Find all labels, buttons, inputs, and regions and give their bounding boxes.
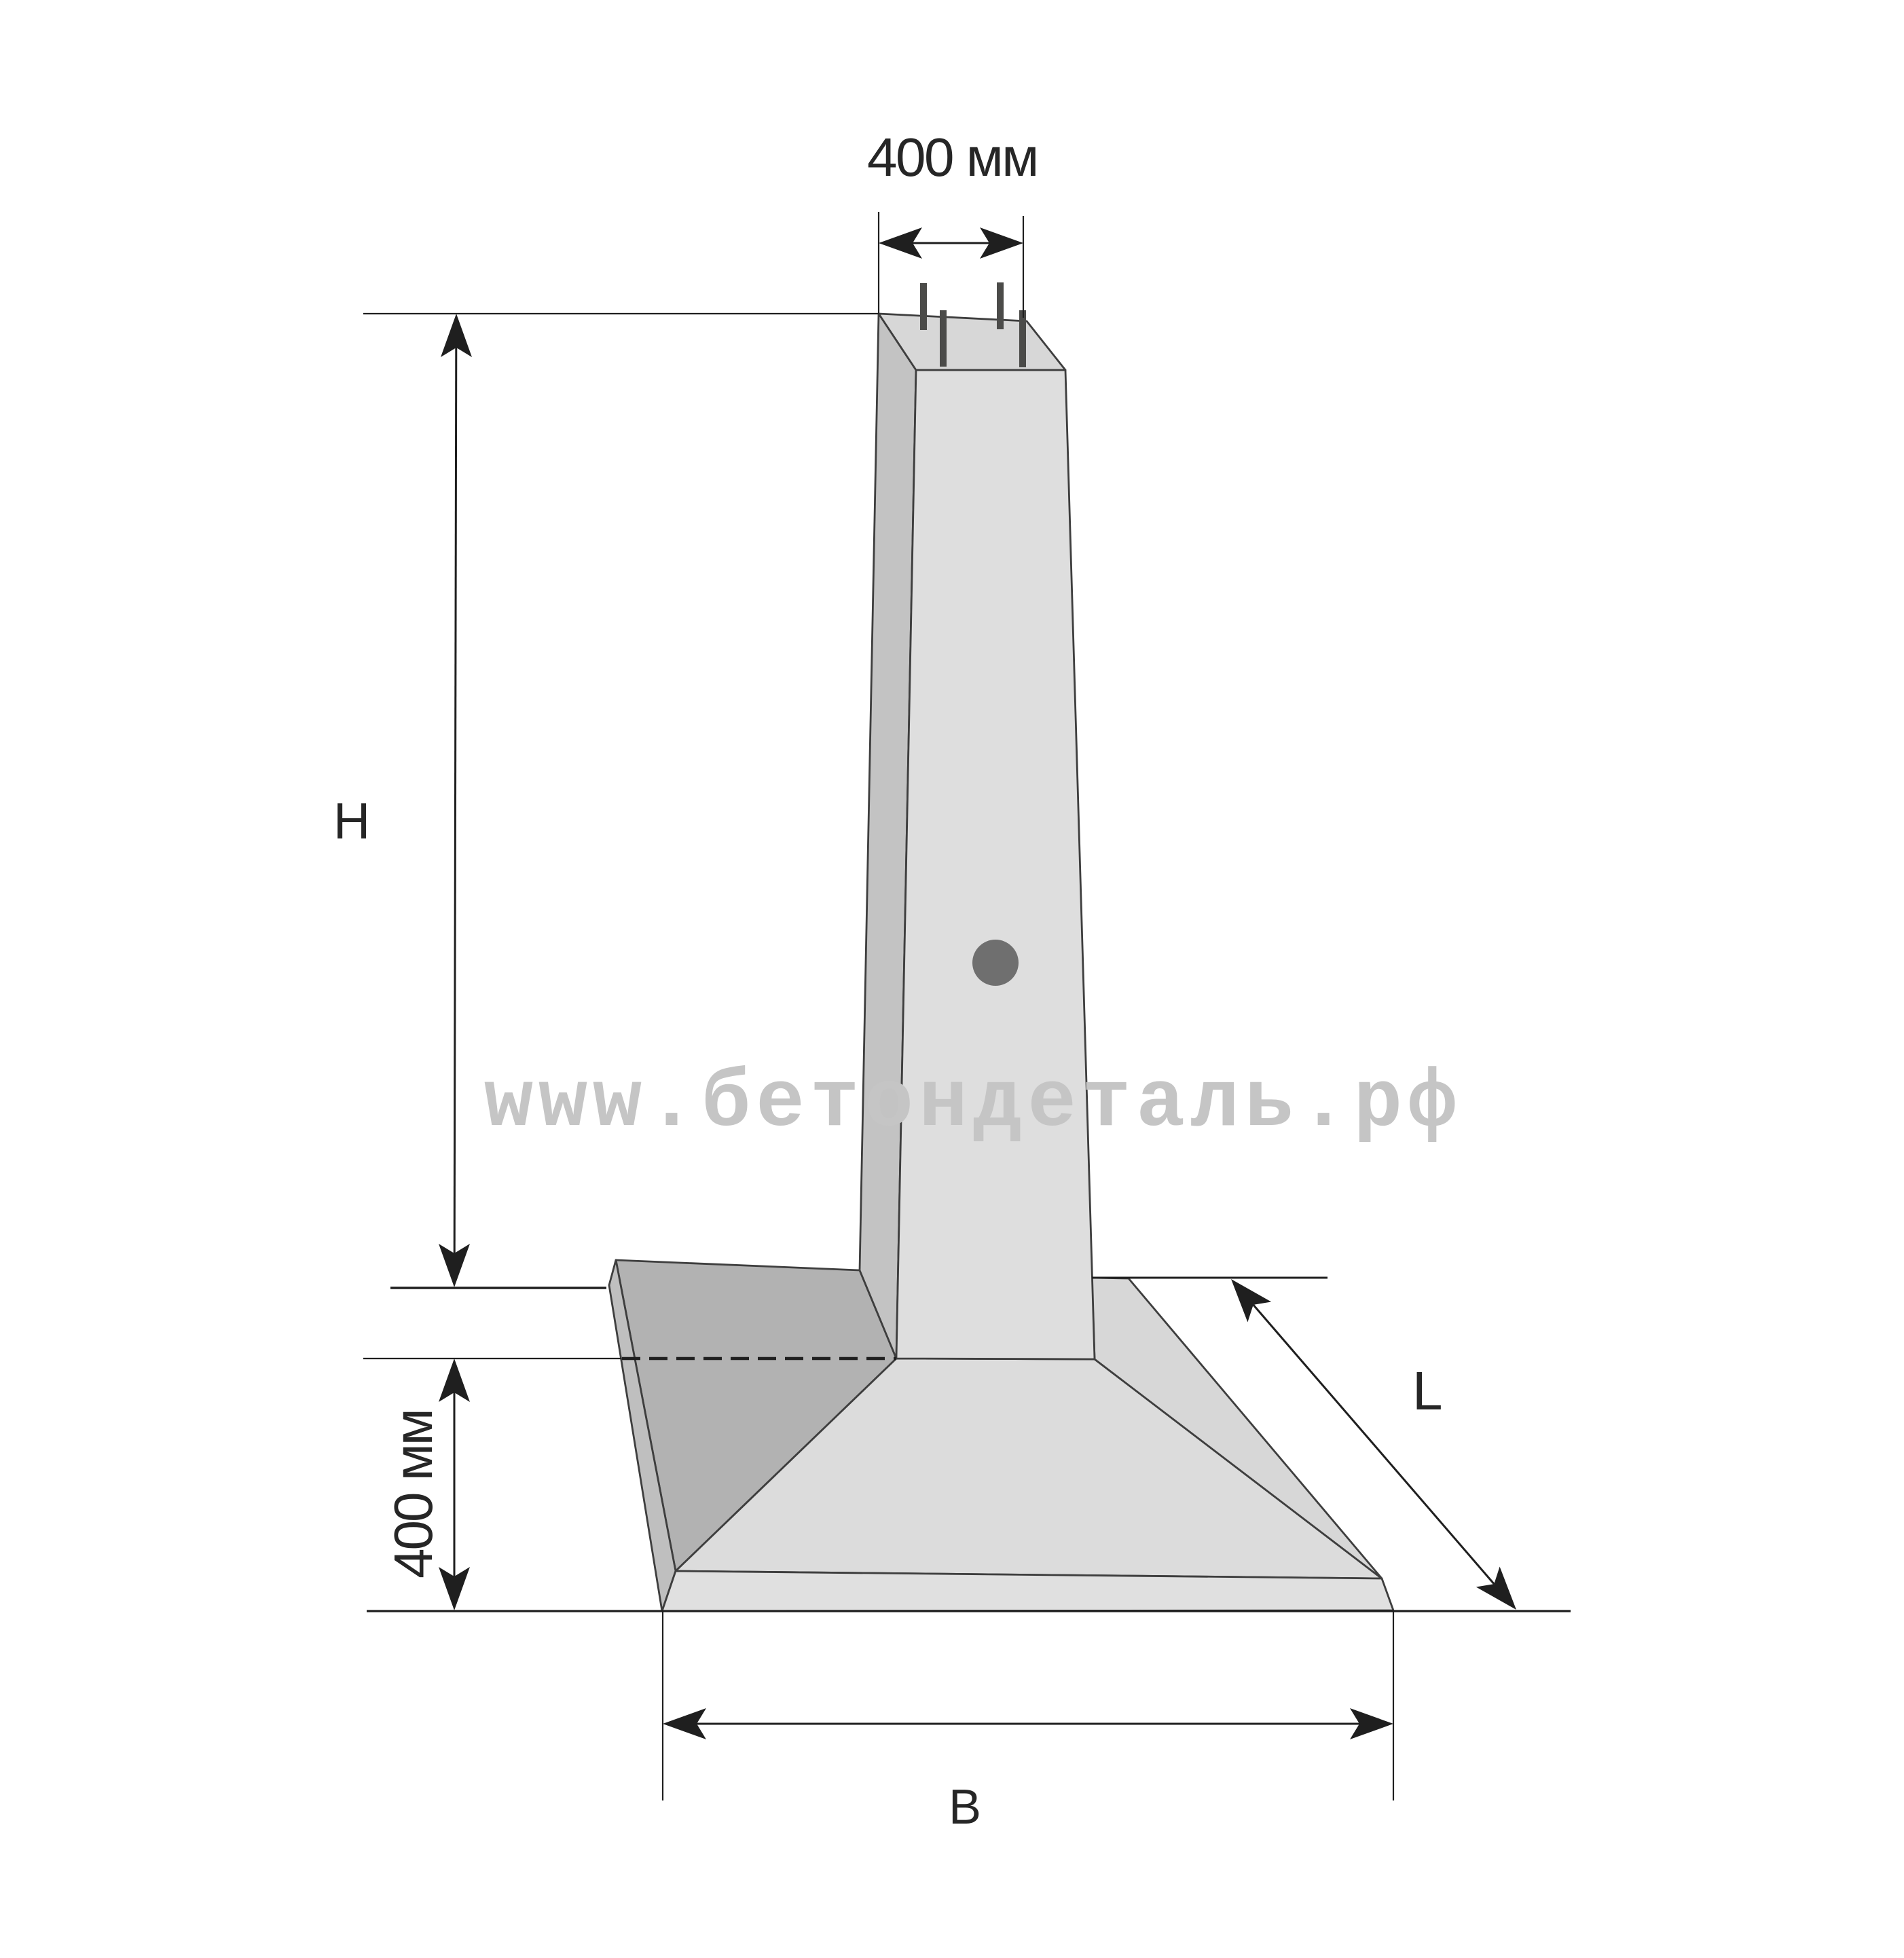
svg-text:400 мм: 400 мм (867, 127, 1038, 187)
svg-text:400 мм: 400 мм (383, 1410, 443, 1578)
svg-text:H: H (333, 792, 370, 849)
svg-text:B: B (949, 1780, 981, 1834)
svg-text:L: L (1412, 1361, 1443, 1421)
svg-text:www.бетондеталь.рф: www.бетондеталь.рф (484, 1058, 1462, 1150)
